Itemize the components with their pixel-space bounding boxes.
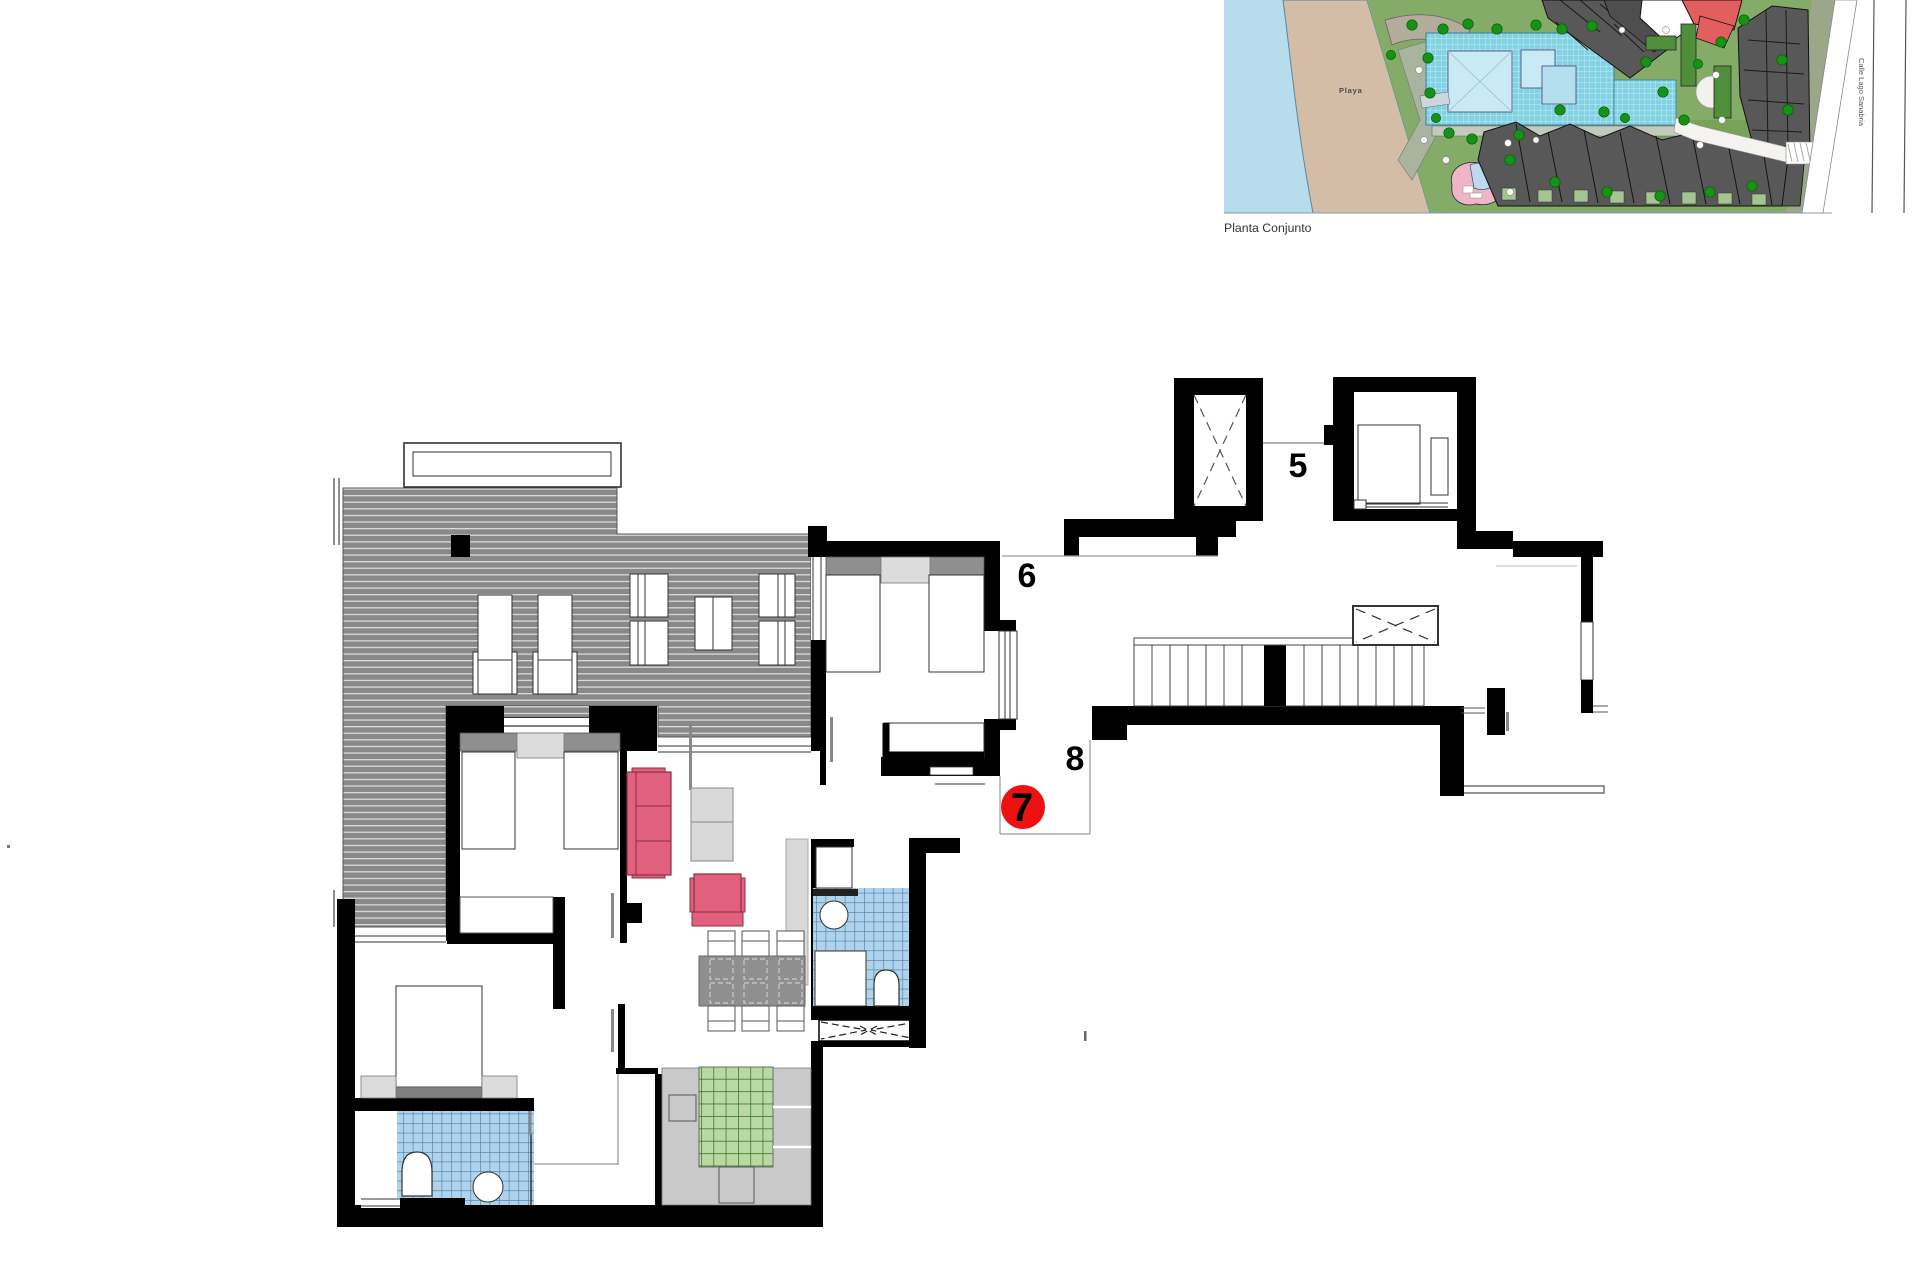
svg-text:6: 6 [1018, 557, 1037, 595]
svg-text:8: 8 [1066, 740, 1085, 778]
svg-text:Calle Lago Sanabria: Calle Lago Sanabria [1857, 58, 1866, 127]
svg-text:Planta Conjunto: Planta Conjunto [1224, 221, 1312, 235]
svg-text:5: 5 [1289, 447, 1308, 485]
svg-text:Playa: Playa [1339, 86, 1363, 95]
svg-text:7: 7 [1011, 786, 1033, 830]
